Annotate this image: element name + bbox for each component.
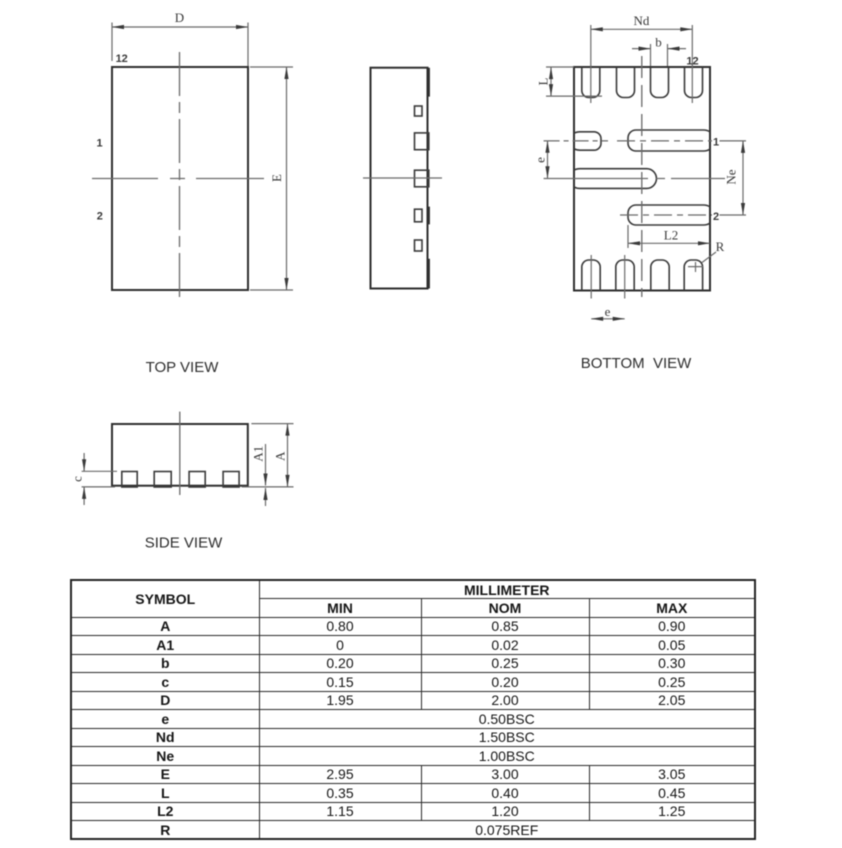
- svg-text:TOP VIEW: TOP VIEW: [146, 359, 220, 376]
- svg-text:12: 12: [686, 56, 698, 68]
- svg-text:12: 12: [116, 53, 128, 65]
- svg-text:BOTTOM VIEW: BOTTOM VIEW: [581, 355, 692, 372]
- svg-text:c: c: [70, 476, 85, 482]
- svg-text:2: 2: [97, 211, 103, 223]
- svg-text:SIDE VIEW: SIDE VIEW: [145, 535, 223, 552]
- svg-text:1: 1: [713, 137, 719, 149]
- svg-text:D: D: [175, 10, 184, 25]
- svg-text:A1: A1: [251, 446, 266, 462]
- svg-text:R: R: [716, 239, 725, 254]
- svg-text:E: E: [269, 174, 284, 182]
- svg-text:2: 2: [713, 211, 719, 223]
- svg-text:Ne: Ne: [724, 169, 739, 184]
- svg-text:e: e: [533, 157, 548, 163]
- svg-text:L2: L2: [664, 228, 678, 243]
- svg-text:b: b: [655, 35, 662, 50]
- svg-text:e: e: [605, 304, 611, 319]
- svg-text:1: 1: [96, 138, 102, 150]
- svg-text:L: L: [536, 77, 551, 85]
- svg-text:Nd: Nd: [634, 13, 650, 28]
- svg-text:A: A: [272, 451, 287, 461]
